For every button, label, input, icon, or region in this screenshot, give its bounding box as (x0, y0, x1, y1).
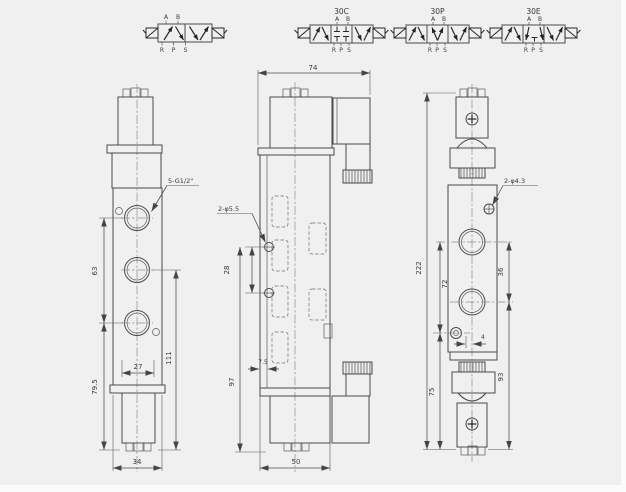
port-label-r: R (332, 47, 336, 54)
port-label-p: P (339, 47, 343, 54)
port-label-r: R (524, 47, 528, 54)
dim-mount-holes-label: 2-φ5.5 (218, 205, 239, 213)
dim-port-spacing: 63 (91, 267, 99, 276)
dim-height-left: 79.5 (91, 379, 99, 395)
port-label-b: B (176, 14, 180, 21)
port-label-p: P (435, 47, 439, 54)
dim-pin-holes-label: 2-φ4.3 (504, 177, 525, 185)
port-label-p: P (531, 47, 535, 54)
dim-bottom-width: 50 (292, 458, 301, 466)
port-label-s: S (443, 47, 447, 54)
port-label-p: P (172, 47, 176, 54)
dim-pilot-width: 27 (134, 363, 143, 371)
dim-width: 34 (133, 458, 142, 466)
dim-wall: 7.5 (258, 359, 268, 366)
port-label-b: B (442, 16, 446, 23)
dim-thread-label: 5-G1/2" (168, 177, 193, 185)
variant-title-30p: 30P (430, 7, 445, 16)
dim-total-height: 222 (415, 261, 423, 274)
port-label-r: R (160, 47, 164, 54)
port-label-s: S (539, 47, 543, 54)
page-edge-bottom (0, 485, 626, 492)
page-background (0, 0, 626, 492)
dim-pin-offset: 4 (481, 334, 485, 341)
valve-drawing-svg: A B R P S 30C A B (0, 0, 626, 492)
page-edge-right (621, 0, 626, 492)
technical-drawing-page: A B R P S 30C A B (0, 0, 626, 492)
dim-upper-span: 72 (441, 280, 449, 289)
variant-title-30c: 30C (334, 7, 349, 16)
dim-top-width: 74 (309, 64, 318, 72)
dim-height-right: 111 (165, 351, 173, 364)
dim-height: 97 (228, 378, 236, 387)
port-label-s: S (347, 47, 351, 54)
dim-lower-left-span: 75 (428, 388, 436, 397)
port-label-b: B (538, 16, 542, 23)
dim-hole-spacing: 28 (223, 266, 231, 275)
dim-lower-right-span: 93 (497, 373, 505, 382)
dim-port-span: 36 (497, 267, 505, 276)
port-label-s: S (184, 47, 188, 54)
port-label-r: R (428, 47, 432, 54)
port-label-b: B (346, 16, 350, 23)
variant-title-30e: 30E (526, 7, 541, 16)
